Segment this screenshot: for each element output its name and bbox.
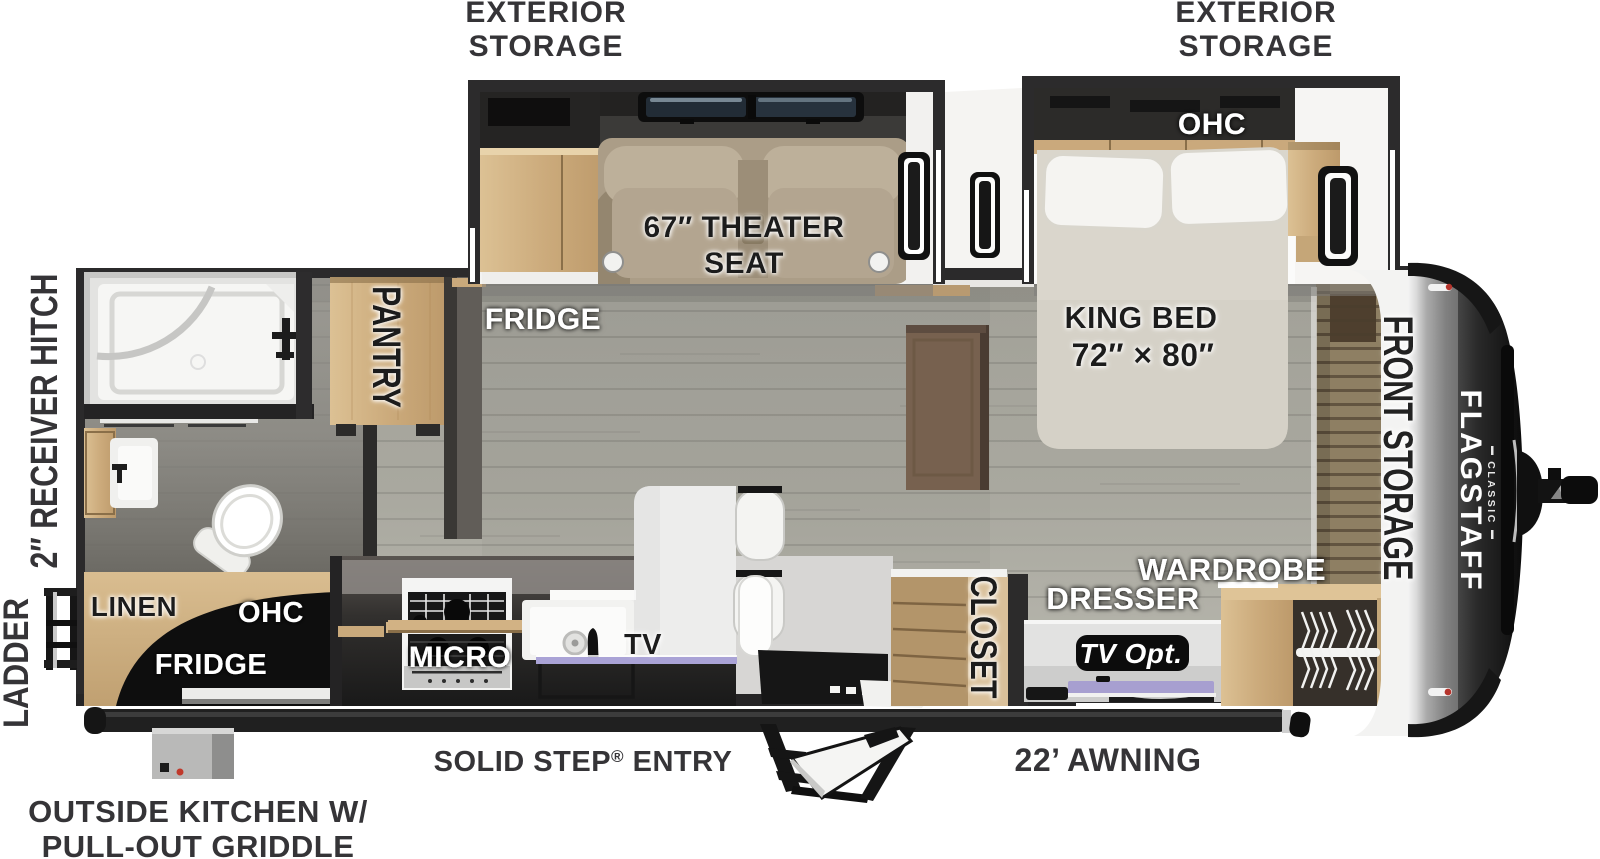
svg-text:SEAT: SEAT: [704, 247, 784, 280]
svg-text:TV Opt.: TV Opt.: [1079, 638, 1182, 669]
svg-text:SOLID STEP® ENTRY: SOLID STEP® ENTRY: [434, 746, 733, 778]
svg-text:OHC: OHC: [238, 597, 304, 629]
svg-text:OHC: OHC: [1178, 108, 1246, 141]
svg-text:MICRO: MICRO: [409, 641, 512, 674]
svg-text:72″ × 80″: 72″ × 80″: [1072, 337, 1215, 373]
svg-text:22’ AWNING: 22’ AWNING: [1015, 742, 1202, 778]
svg-text:CLOSET: CLOSET: [963, 576, 1004, 699]
svg-text:67″ THEATER: 67″ THEATER: [643, 211, 844, 244]
svg-text:TV: TV: [624, 629, 662, 661]
svg-text:FRIDGE: FRIDGE: [155, 649, 268, 681]
svg-text:FRONT STORAGE: FRONT STORAGE: [1375, 316, 1422, 581]
svg-text:LINEN: LINEN: [91, 591, 178, 622]
svg-text:OUTSIDE KITCHEN W/: OUTSIDE KITCHEN W/: [28, 794, 368, 829]
svg-text:EXTERIOR: EXTERIOR: [1175, 0, 1336, 29]
svg-text:WARDROBE: WARDROBE: [1138, 552, 1326, 587]
svg-text:KING BED: KING BED: [1064, 301, 1217, 335]
svg-text:CLASSIC: CLASSIC: [1485, 461, 1497, 525]
svg-text:PANTRY: PANTRY: [364, 286, 408, 408]
svg-text:2″ RECEIVER HITCH: 2″ RECEIVER HITCH: [24, 274, 66, 569]
svg-text:EXTERIOR: EXTERIOR: [465, 0, 626, 29]
svg-text:PULL-OUT GRIDDLE: PULL-OUT GRIDDLE: [42, 829, 355, 859]
svg-text:STORAGE: STORAGE: [1179, 30, 1334, 63]
svg-text:LADDER: LADDER: [0, 598, 36, 728]
svg-text:STORAGE: STORAGE: [469, 30, 624, 63]
svg-text:FLAGSTAFF: FLAGSTAFF: [1454, 389, 1487, 592]
svg-text:FRIDGE: FRIDGE: [485, 303, 601, 336]
